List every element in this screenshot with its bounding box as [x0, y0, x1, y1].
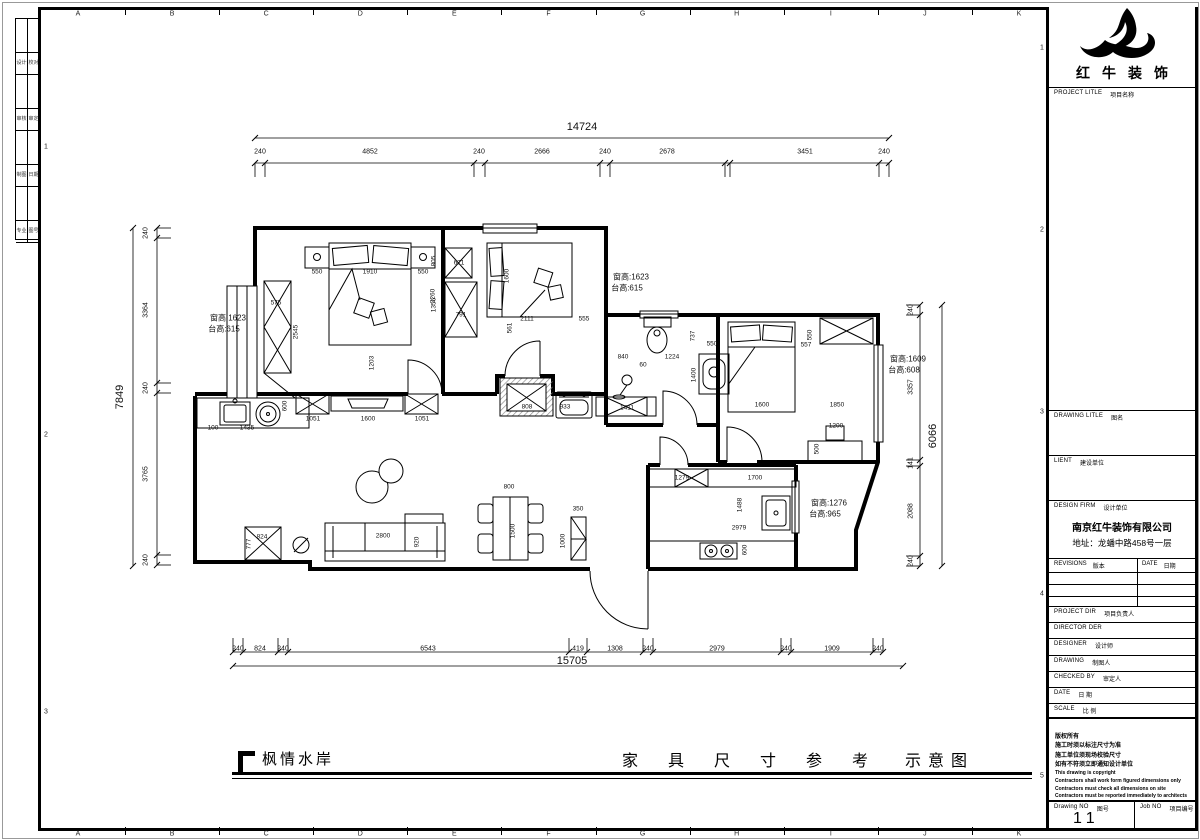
dim-label: 240	[254, 149, 266, 156]
bay-window	[227, 286, 257, 398]
dim-label: 1910	[363, 269, 377, 276]
title-block: 红牛装饰 PROJECT LITLE项目名称 DRAWING LITLE图名 L…	[1049, 7, 1195, 828]
dim-label: 240	[232, 646, 244, 653]
dim-label: 1600	[504, 269, 511, 283]
dim-label: 240	[642, 646, 654, 653]
floor-lamp	[293, 537, 309, 553]
dim-label: 3451	[797, 149, 813, 156]
dim-label: 2979	[709, 646, 725, 653]
bull-logo-icon	[1080, 8, 1155, 58]
dim-label: 100	[208, 425, 219, 432]
dim-label: 1051	[415, 416, 429, 423]
drawing-title-suffix: 示意图	[905, 747, 974, 771]
dim-label: 1850	[830, 402, 844, 409]
title-underline-thick	[232, 772, 1032, 775]
dim-label: 240	[908, 304, 915, 316]
dim-label: 60	[639, 362, 646, 369]
dim-label: 240	[878, 149, 890, 156]
copyright-line: 如有不符须立即通知设计单位	[1055, 761, 1195, 770]
dim-label: 2800	[376, 533, 390, 540]
section-copyright: 版权所有施工时须以标注尺寸为准施工单位须现场校验尺寸如有不符须立即通知设计单位T…	[1049, 717, 1195, 800]
dim-label: 561	[507, 323, 514, 334]
section-director: DIRECTOR DER	[1049, 622, 1195, 638]
section-design-firm: DESIGN FIRM设计单位 南京红牛装饰有限公司 地址：龙蟠中路458号一层	[1049, 500, 1195, 558]
dim-label: 920	[414, 537, 421, 548]
label-cn: 项目名称	[1110, 90, 1134, 99]
copyright-line: 版权所有	[1055, 733, 1195, 742]
dim-label: 1224	[665, 354, 679, 361]
dim-label: 3364	[143, 302, 150, 318]
label-en: PROJECT LITLE	[1054, 90, 1102, 99]
annotation-label: 窗高:1609	[890, 354, 926, 365]
dim-label: 600	[282, 401, 289, 412]
kitchen-window	[792, 481, 799, 533]
dim-label: 791	[456, 312, 467, 319]
dim-label: 2979	[732, 525, 746, 532]
master-nightstands	[305, 247, 435, 268]
dim-label: 1000	[560, 534, 567, 548]
dim-label: 1051	[306, 416, 320, 423]
copyright-line: Contractors must check all dimensions on…	[1055, 786, 1195, 794]
dim-label: 1500	[510, 524, 517, 538]
dim-label: 4852	[362, 149, 378, 156]
project-name: 枫情水岸	[262, 748, 334, 769]
bedroom2-door	[505, 341, 540, 376]
kitchen-door	[660, 437, 688, 465]
dim-label: 1600	[361, 416, 375, 423]
title-corner-mark-h	[238, 751, 255, 756]
bedroom2-window	[483, 224, 537, 233]
dim-label: 1308	[607, 646, 623, 653]
floor-plan-canvas	[0, 0, 1200, 840]
toilet	[644, 317, 671, 353]
dim-label: 240	[473, 149, 485, 156]
dim-label: 350	[573, 506, 584, 513]
section-client: LIENT建设单位	[1049, 455, 1195, 500]
dim-label: 1909	[824, 646, 840, 653]
copyright-line: 施工单位须现场校验尺寸	[1055, 752, 1195, 761]
dim-label: 550	[707, 341, 718, 348]
dim-label: 575	[271, 300, 282, 307]
drawing-number: 11	[1073, 810, 1100, 828]
dim-label: 840	[618, 354, 629, 361]
copyright-line: This drawing is copyright	[1055, 770, 1195, 778]
section-date: DATE日 期	[1049, 687, 1195, 703]
dim-label: 2666	[534, 149, 550, 156]
dim-label: 15705	[557, 655, 588, 667]
drawing-sheet: AABBCCDDEEFFGGHHIIJJKK12312345 设计校对审核审定制…	[0, 0, 1200, 840]
copyright-line: 施工时须以标注尺寸为准	[1055, 742, 1195, 751]
firm-address: 地址：龙蟠中路458号一层	[1049, 537, 1195, 549]
doors	[408, 341, 762, 629]
annotation-label: 窗高:1623	[210, 313, 246, 324]
title-underline-thin	[232, 778, 1032, 779]
section-project-dir: PROJECT DIR项目负责人	[1049, 606, 1195, 622]
dim-label: 141	[908, 457, 915, 469]
dim-label: 1600	[755, 402, 769, 409]
annotation-label: 台高:608	[888, 365, 920, 376]
dim-label: 3357	[908, 379, 915, 395]
dim-label: 240	[599, 149, 611, 156]
dim-label: 737	[690, 331, 697, 342]
bedroom3-bed	[728, 322, 795, 412]
dim-label: 240	[143, 227, 150, 239]
firm-name: 南京红牛装饰有限公司	[1049, 519, 1195, 534]
dim-label: 1400	[691, 368, 698, 382]
section-revisions: REVISIONS版本 DATE日期	[1049, 558, 1195, 606]
section-designer: DESIGNER设计师	[1049, 638, 1195, 655]
drawing-title: 家具尺寸参考	[622, 747, 898, 771]
master-door	[408, 360, 442, 394]
annotation-label: 窗高:1276	[811, 498, 847, 509]
bathroom-door	[663, 391, 697, 425]
annotation-label: 台高:615	[208, 324, 240, 335]
section-scale: SCALE比 例	[1049, 703, 1195, 717]
section-drafter: DRAWING制图人	[1049, 655, 1195, 671]
bedroom2-bed	[487, 243, 572, 317]
coffee-table	[356, 459, 403, 503]
dim-label: 2088	[908, 503, 915, 519]
bedroom3-door	[727, 427, 762, 462]
section-drawing-title: DRAWING LITLE图名	[1049, 410, 1195, 455]
dim-label: 2678	[659, 149, 675, 156]
entry-door	[590, 571, 648, 629]
dim-label: 1203	[369, 356, 376, 370]
dim-label: 240	[780, 646, 792, 653]
washbasin	[699, 354, 729, 394]
west-counter	[197, 398, 309, 428]
dim-label: 1411	[620, 405, 634, 412]
bedroom3-wardrobe	[820, 318, 873, 344]
annotation-label: 台高:965	[809, 509, 841, 520]
dim-label: 550	[807, 330, 814, 341]
dim-label: 3765	[143, 466, 150, 482]
tv-cabinet	[296, 394, 438, 414]
shower-head-icon	[613, 375, 632, 399]
dim-label: 671	[454, 260, 465, 267]
dim-label: 7849	[114, 385, 126, 409]
dim-label: 805	[431, 256, 438, 267]
copyright-line: Contractors shall work form figured dime…	[1055, 778, 1195, 786]
dim-label: 500	[814, 444, 821, 455]
dim-label: 419	[572, 646, 584, 653]
dim-label: 6543	[420, 646, 436, 653]
annotation-label: 台高:615	[611, 283, 643, 294]
section-checked-by: CHECKED BY审定人	[1049, 671, 1195, 687]
dim-label: 557	[801, 342, 812, 349]
master-bed	[329, 243, 411, 345]
dim-label: 1356	[431, 298, 438, 312]
dim-label: 2111	[520, 316, 534, 323]
dim-label: 777	[246, 539, 253, 550]
dim-label: 1279	[675, 475, 689, 482]
dim-label: 550	[312, 269, 323, 276]
dim-label: 824	[254, 646, 266, 653]
section-project-title: PROJECT LITLE项目名称	[1049, 87, 1195, 410]
dim-label: 240	[143, 554, 150, 566]
copyright-text: 版权所有施工时须以标注尺寸为准施工单位须现场校验尺寸如有不符须立即通知设计单位T…	[1049, 719, 1195, 801]
dim-label: 240	[872, 646, 884, 653]
dim-label: 808	[522, 404, 533, 411]
dim-label: 600	[742, 545, 749, 556]
dim-label: 933	[560, 404, 571, 411]
brand-name: 红牛装饰	[1049, 63, 1195, 83]
dim-label: 240	[277, 646, 289, 653]
dim-label: 800	[504, 484, 515, 491]
dim-label: 14724	[567, 121, 598, 133]
hall-cabinet	[571, 517, 586, 560]
dim-label: 1200	[829, 423, 843, 430]
dim-label: 240	[908, 555, 915, 567]
dim-label: 240	[143, 382, 150, 394]
dim-label: 1700	[748, 475, 762, 482]
dim-label: 550	[418, 269, 429, 276]
section-drawing-no: Drawing NO图号 11 Job NO项目编号	[1049, 800, 1195, 828]
dim-label: 6066	[927, 424, 939, 448]
dim-label: 555	[579, 316, 590, 323]
kitchen-counters	[649, 469, 796, 569]
bedroom3-window	[874, 345, 883, 442]
dim-label: 824	[257, 534, 268, 541]
annotation-label: 窗高:1623	[613, 272, 649, 283]
dim-label: 1435	[240, 425, 254, 432]
dim-label: 2545	[293, 325, 300, 339]
dim-label: 1488	[737, 498, 744, 512]
